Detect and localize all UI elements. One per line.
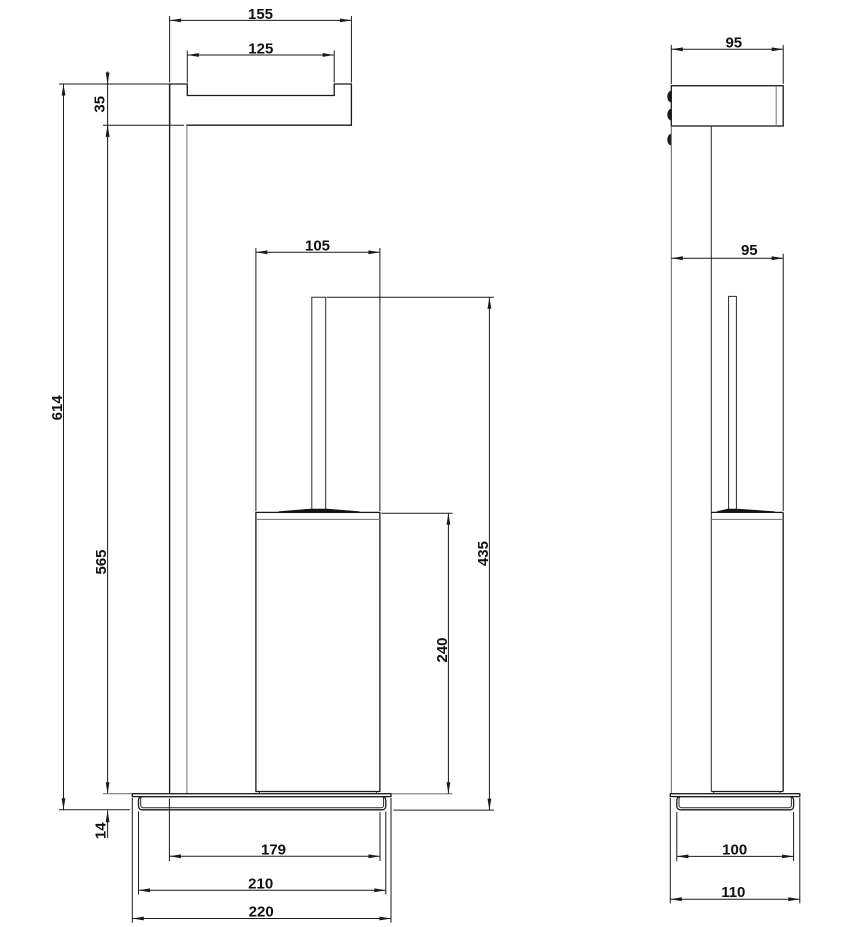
- svg-text:95: 95: [725, 35, 742, 52]
- svg-text:105: 105: [305, 237, 330, 254]
- svg-text:240: 240: [434, 637, 451, 662]
- svg-text:435: 435: [475, 541, 492, 566]
- svg-text:155: 155: [248, 6, 273, 23]
- svg-text:220: 220: [249, 903, 274, 920]
- svg-text:110: 110: [721, 884, 745, 901]
- svg-text:100: 100: [722, 842, 747, 859]
- svg-text:210: 210: [248, 875, 273, 892]
- svg-text:565: 565: [93, 549, 110, 574]
- svg-text:35: 35: [91, 96, 108, 113]
- svg-text:14: 14: [93, 822, 110, 839]
- svg-text:125: 125: [248, 41, 273, 58]
- svg-text:179: 179: [261, 842, 286, 859]
- svg-text:614: 614: [49, 395, 66, 421]
- svg-text:95: 95: [741, 242, 758, 259]
